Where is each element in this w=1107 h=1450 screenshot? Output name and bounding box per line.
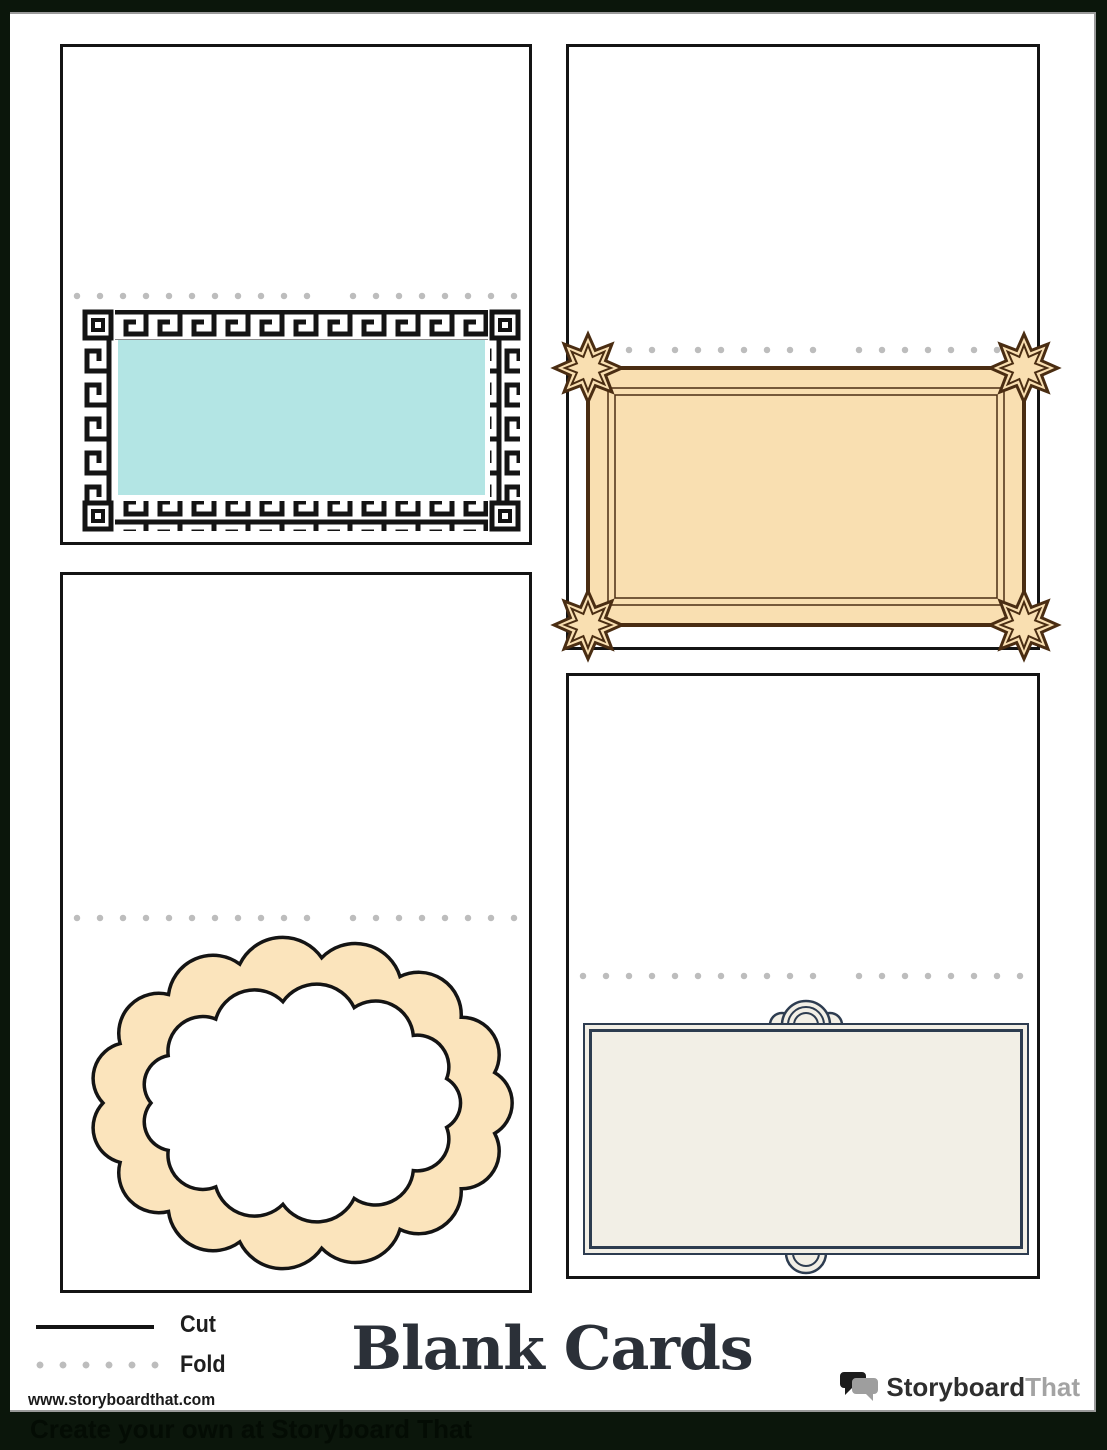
website-url: www.storyboardthat.com [28,1390,215,1410]
scalloped-frame [81,930,521,1276]
footer-watermark-text: Create your own at Storyboard That [30,1414,472,1445]
semicircle-ornament-icon [782,1253,830,1275]
fold-line-dotted [579,346,1027,354]
printable-card-template-page: { "title": "Blank Cards", "website": "ww… [0,0,1107,1450]
logo-storyboard: Storyboard [886,1372,1025,1402]
worksheet-page: Cut Fold www.storyboardthat.com Blank Ca… [10,12,1096,1412]
art-deco-frame [578,358,1034,635]
storyboardthat-logo: StoryboardThat [840,1370,1080,1404]
card-classic [566,673,1040,1279]
card-art-deco [566,44,1040,650]
card-scallop [60,572,532,1293]
greek-key-frame [81,308,522,533]
logo-that: That [1025,1372,1080,1402]
logo-wordmark: StoryboardThat [886,1372,1080,1403]
fold-line-dotted [73,292,519,300]
double-line-frame [583,1023,1029,1255]
card-greek-key [60,44,532,545]
fold-line-dotted [73,914,519,922]
fold-line-dotted [579,972,1027,980]
arch-ornament-icon [764,993,848,1025]
speech-bubbles-icon [840,1370,880,1404]
